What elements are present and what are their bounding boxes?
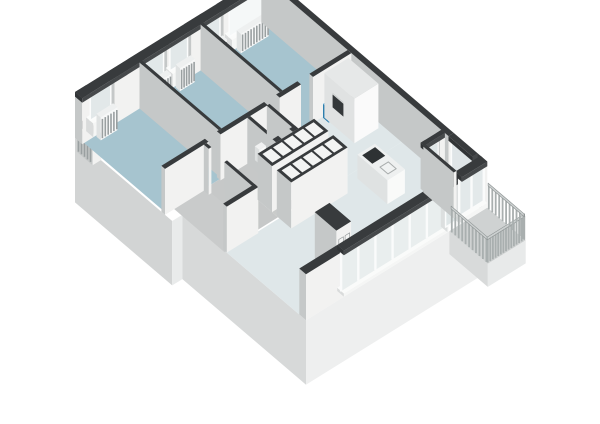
bathroom-wall-seg-1	[204, 143, 212, 195]
floor-plan-stage	[0, 0, 600, 424]
facade-step	[172, 215, 182, 286]
floor-plan-svg	[0, 0, 600, 424]
